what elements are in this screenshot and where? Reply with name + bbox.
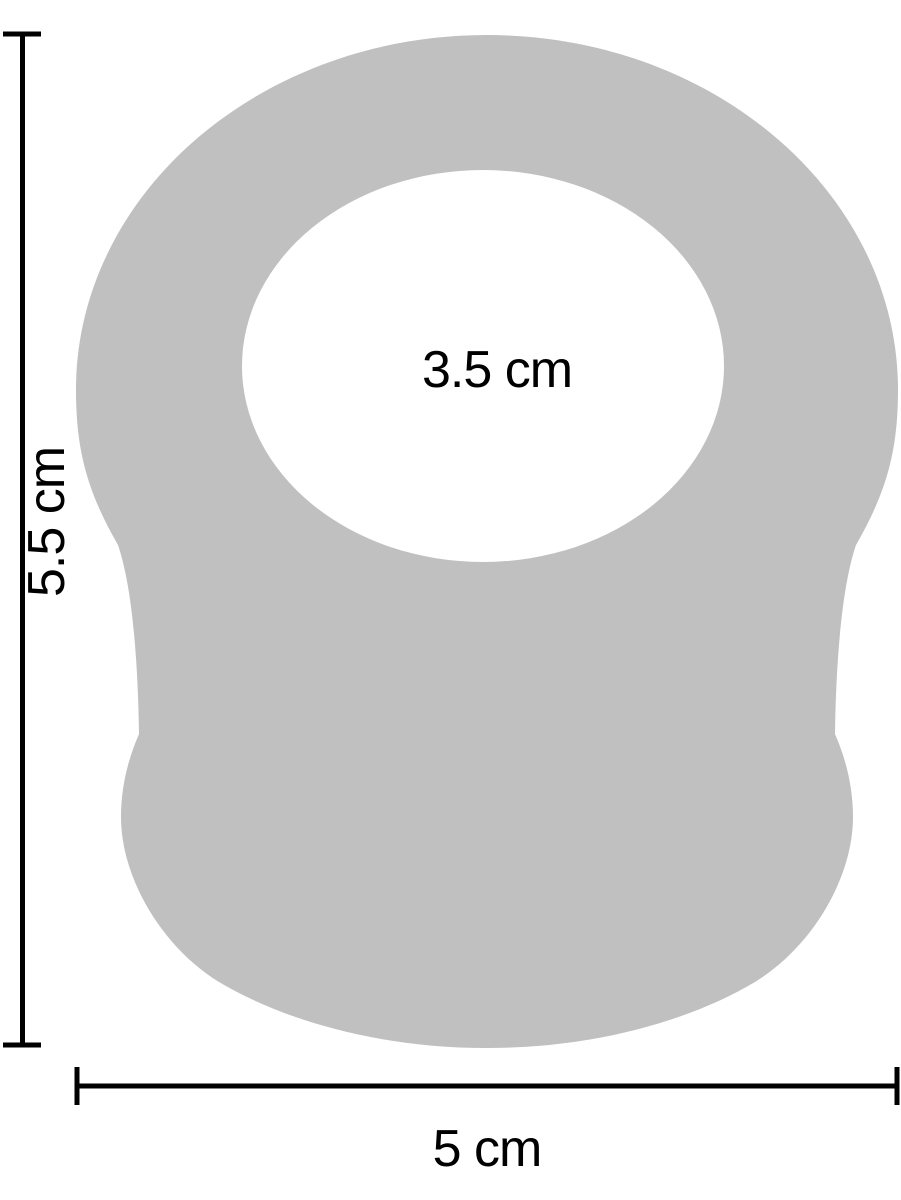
width-dimension: 5 cm bbox=[77, 1067, 897, 1178]
product-dimension-diagram: 5.5 cm 5 cm 3.5 cm bbox=[0, 0, 901, 1200]
dimension-figure: 5.5 cm 5 cm 3.5 cm bbox=[0, 0, 901, 1200]
height-label: 5.5 cm bbox=[18, 447, 76, 597]
height-dimension: 5.5 cm bbox=[3, 34, 76, 1045]
width-label: 5 cm bbox=[433, 1120, 542, 1178]
inner-diameter-label: 3.5 cm bbox=[422, 341, 572, 399]
